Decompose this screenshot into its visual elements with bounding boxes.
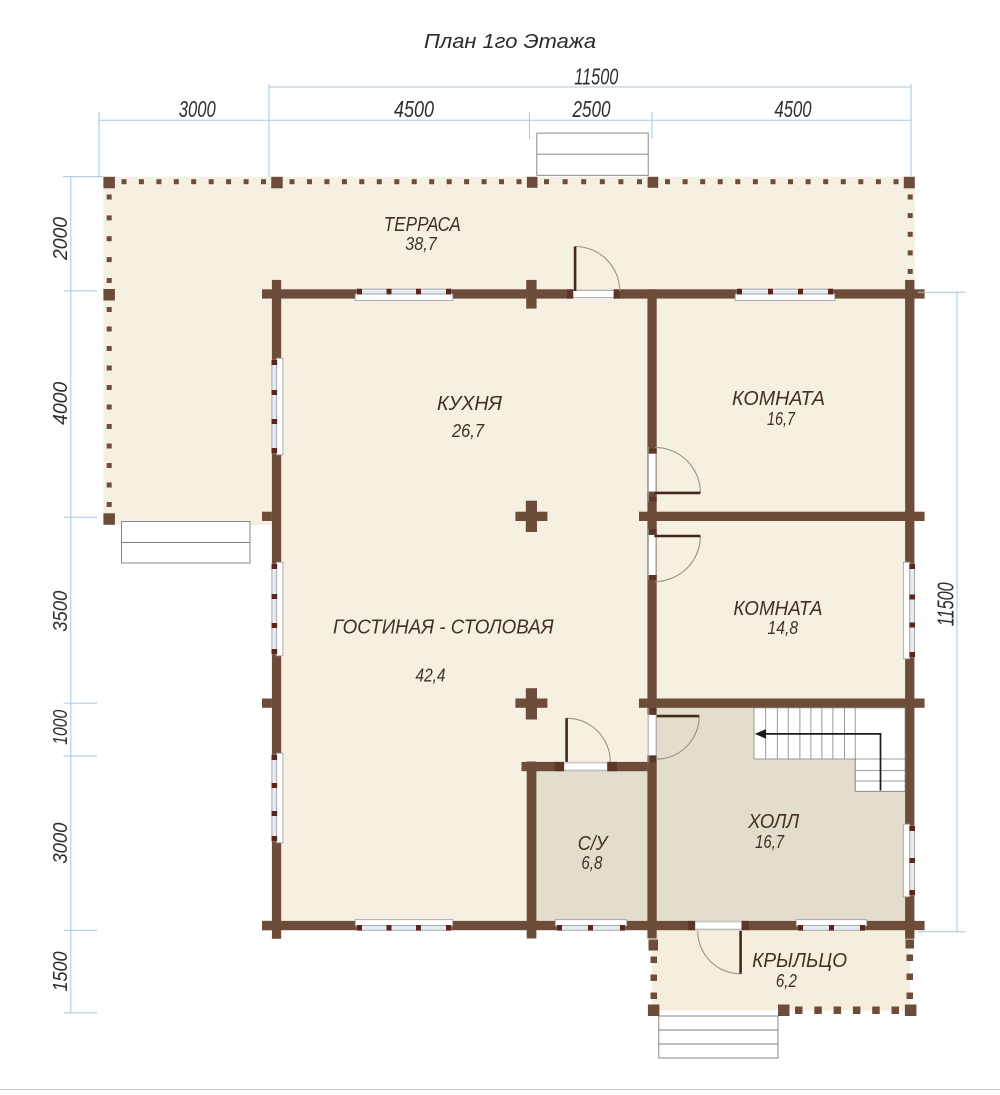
svg-text:3000: 3000	[179, 96, 216, 122]
svg-text:КОМНАТА: КОМНАТА	[733, 598, 822, 620]
svg-text:6,2: 6,2	[776, 971, 797, 991]
svg-text:ГОСТИНАЯ - СТОЛОВАЯ: ГОСТИНАЯ - СТОЛОВАЯ	[333, 617, 554, 639]
svg-text:42,4: 42,4	[416, 666, 446, 686]
svg-text:26,7: 26,7	[451, 421, 485, 441]
svg-text:4000: 4000	[50, 382, 72, 425]
svg-text:38,7: 38,7	[405, 234, 437, 254]
svg-text:6,8: 6,8	[581, 853, 602, 873]
svg-text:14,8: 14,8	[768, 618, 799, 638]
svg-text:ХОЛЛ: ХОЛЛ	[747, 811, 799, 833]
svg-text:16,7: 16,7	[755, 832, 785, 852]
svg-text:КУХНЯ: КУХНЯ	[437, 393, 502, 415]
svg-text:КОМНАТА: КОМНАТА	[732, 388, 825, 410]
svg-text:11500: 11500	[574, 64, 618, 90]
svg-text:ТЕРРАСА: ТЕРРАСА	[384, 214, 461, 236]
svg-text:3500: 3500	[50, 591, 72, 632]
svg-text:16,7: 16,7	[767, 409, 796, 429]
svg-text:2000: 2000	[50, 217, 72, 261]
svg-text:2500: 2500	[572, 96, 611, 122]
svg-text:1500: 1500	[50, 952, 72, 992]
svg-text:3000: 3000	[50, 823, 72, 864]
svg-text:4500: 4500	[394, 96, 434, 122]
svg-text:КРЫЛЬЦО: КРЫЛЬЦО	[752, 950, 847, 972]
svg-text:С/У: С/У	[578, 833, 610, 855]
svg-text:1000: 1000	[50, 710, 72, 745]
svg-text:План 1го Этажа: План 1го Этажа	[424, 31, 596, 53]
svg-text:4500: 4500	[775, 96, 812, 122]
svg-text:11500: 11500	[933, 582, 959, 626]
